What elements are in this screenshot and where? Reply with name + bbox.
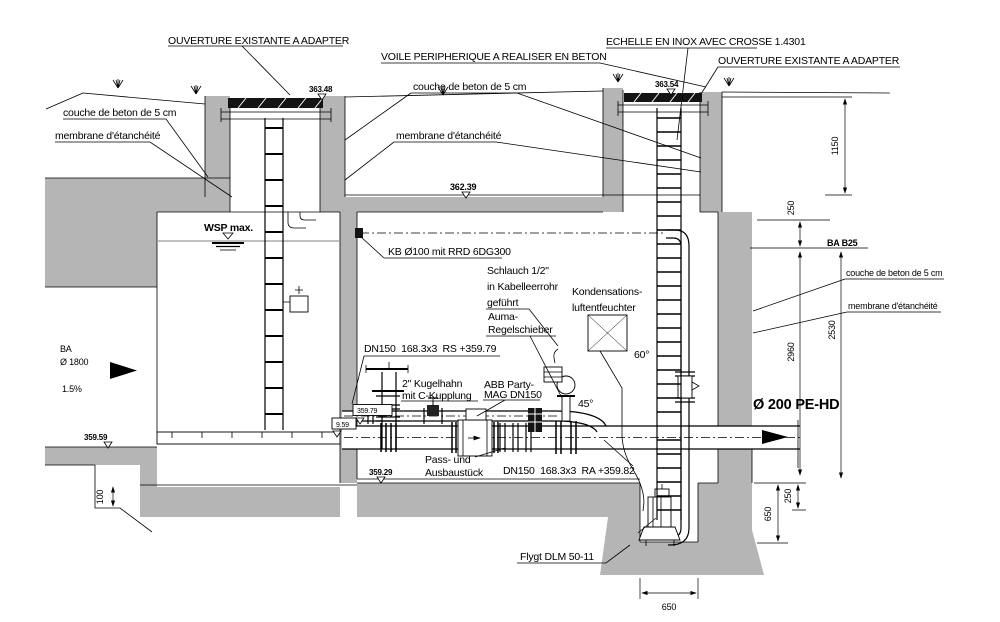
floor-screed: [157, 432, 340, 444]
callout-membrane-mid: membrane d'étanchéité: [396, 130, 502, 142]
elevation-363-54: 363.54: [655, 80, 679, 89]
callout-couche-mid: couche de beton de 5 cm: [413, 81, 527, 93]
auma-actuator: [544, 349, 575, 421]
dim-250-top: 250: [786, 201, 796, 216]
dim-1150: 1150: [830, 137, 840, 156]
flow-arrow-icon: [110, 362, 137, 379]
label-angle-45: 45°: [578, 398, 593, 410]
shaft-cover-left: [221, 98, 331, 122]
elevation-359-79: 359.79: [357, 408, 378, 415]
callout-echelle: ECHELLE EN INOX AVEC CROSSE 1.4301: [606, 36, 806, 48]
elevation-9-59: 9.59: [336, 422, 349, 429]
pump-station-section-drawing: OUVERTURE EXISTANTE A ADAPTER VOILE PERI…: [0, 0, 1000, 622]
ladder-right: [657, 108, 681, 520]
label-flygt: Flygt DLM 50-11: [520, 551, 594, 563]
label-dn150-ra: DN150 168.3x3 RA +359.82: [503, 465, 635, 477]
label-ba-diameter: Ø 1800: [60, 357, 89, 367]
callout-membrane-left: membrane d'étanchéité: [55, 130, 161, 142]
label-slope: 1.5%: [62, 384, 82, 394]
elevation-363-48: 363.48: [309, 85, 333, 94]
callout-ouverture-left: OUVERTURE EXISTANTE A ADAPTER: [168, 35, 350, 47]
dim-650-right: 650: [763, 507, 773, 522]
label-schlauch-2: in Kabelleerrohr: [487, 281, 559, 293]
label-auma-2: Regelschieber: [488, 324, 553, 336]
level-sensor: [290, 296, 308, 312]
vent-elbow: [288, 212, 316, 228]
flygt-pump: [639, 484, 680, 546]
wet-well: [157, 212, 340, 444]
hose-icon: [554, 349, 558, 363]
label-wsp-max: WSP max.: [204, 222, 253, 234]
shaft-cover-right: [618, 93, 708, 116]
elevation-359-59: 359.59: [84, 433, 108, 442]
label-schlauch-1: Schlauch 1/2": [487, 265, 549, 277]
drawing-canvas: OUVERTURE EXISTANTE A ADAPTER VOILE PERI…: [0, 0, 1000, 622]
dim-100: 100: [95, 490, 105, 505]
dim-2530: 2530: [827, 320, 837, 339]
label-kugelhahn-1: 2" Kugelhahn: [402, 378, 463, 390]
label-ba-b25: BA B25: [827, 238, 858, 248]
label-ba: BA: [60, 344, 72, 354]
label-pe-hd: Ø 200 PE-HD: [753, 397, 839, 413]
dim-2960: 2960: [786, 342, 796, 361]
ladder-left: [265, 118, 283, 430]
label-kugelhahn-2: mit C-Kupplung: [402, 390, 472, 402]
callout-voile: VOILE PERIPHERIQUE A REALISER EN BETON: [381, 51, 607, 63]
inlet-pipe-ba1800: [110, 362, 137, 379]
callout-couche-right: couche de beton de 5 cm: [846, 268, 942, 278]
label-kondens-1: Kondensations-: [572, 286, 643, 298]
label-kb: KB Ø100 mit RRD 6DG300: [388, 246, 511, 258]
dim-250-bottom: 250: [783, 489, 793, 504]
label-abb-2: MAG DN150: [484, 389, 542, 401]
label-schlauch-3: geführt: [487, 297, 519, 309]
elevation-362-39: 362.39: [450, 182, 477, 192]
kondensation-box: [588, 315, 644, 511]
label-auma-1: Auma-: [488, 311, 519, 323]
label-kondens-2: luftentfeuchter: [572, 302, 636, 314]
dim-650-bottom: 650: [662, 602, 677, 612]
callout-couche-left: couche de beton de 5 cm: [63, 107, 177, 119]
elevation-359-29: 359.29: [369, 468, 393, 477]
label-dn150-rs: DN150 168.3x3 RS +359.79: [364, 343, 497, 355]
label-angle-60: 60°: [634, 349, 649, 361]
label-pass-1: Pass- und: [425, 454, 471, 466]
label-pass-2: Ausbaustück: [425, 467, 484, 479]
callout-ouverture-right: OUVERTURE EXISTANTE A ADAPTER: [718, 55, 900, 67]
callout-membrane-right: membrane d'étanchéité: [848, 301, 938, 311]
junction-box: [528, 408, 542, 432]
